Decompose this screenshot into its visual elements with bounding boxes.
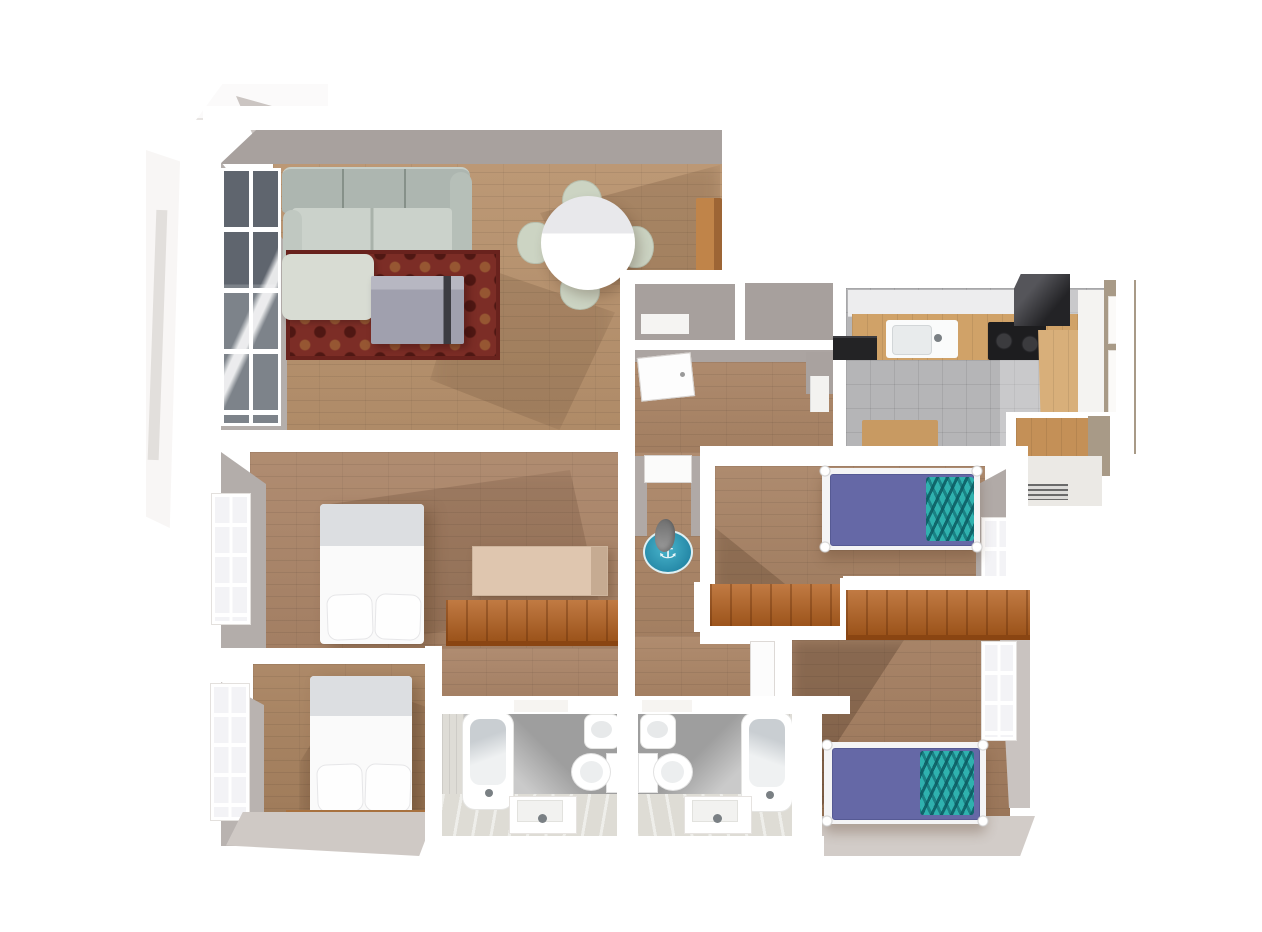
master-pillow-right [374,593,422,641]
bathroom1-door-threshold [514,700,568,712]
living-room-bottom-wall [203,430,632,450]
closet-right-interior [745,283,834,341]
bathroom2-bidet-bowl [647,721,668,738]
closet-shelf [641,314,689,334]
bathroom2-bathtub-basin [749,719,785,787]
bedroom2-wardrobe [710,584,844,632]
bathroom1-tub-faucet [485,789,493,797]
bedroom3-bed-posts [820,738,990,828]
living-room-picture-window [221,168,281,426]
kitchen-range-hood [1014,274,1070,326]
kitchen-nook-vent [1026,484,1068,500]
living-room-top-wall [203,106,740,130]
hallway-right-wall [700,464,715,592]
master-bed-sheet [320,504,424,546]
bathroom2-door-threshold [642,700,692,712]
kitchen-sink-basin [892,325,932,355]
bathroom1-bathtub-basin [470,719,506,785]
bathrooms-bottom-wall [425,836,824,856]
front-door [637,352,695,401]
master-pillow-left [326,593,374,641]
kitchen-faucet [934,334,942,342]
living-room-top-wall-face [220,130,736,164]
kitchen-cooktop [988,322,1046,360]
bedroom4-right-wall [425,646,442,858]
living-room-right-wall [722,106,740,276]
entry-side-door [810,376,829,412]
bathroom2-toilet-seat [661,761,684,783]
master-window [212,494,250,624]
bedroom3-wardrobe [846,590,1030,640]
bathroom1-bidet-bowl [591,721,612,738]
kitchen-outer-right-wall [1116,278,1134,456]
hallway-door [644,455,692,483]
bathroom2-vanity-faucet [713,814,722,823]
sofa-back [282,167,470,213]
kitchen-left-wall [833,270,846,462]
front-door-handle [680,372,685,377]
kitchen-top-wall [833,270,1133,288]
bathroom2-right-wall [792,696,822,856]
bedroom4-pillow-left [316,763,364,813]
bathroom1-vanity-faucet [538,814,547,823]
kitchen-oven [833,336,877,360]
sideboard [696,198,722,272]
hallway-right-wall-lower [694,582,711,632]
master-wardrobe [446,600,628,646]
master-dresser [472,546,608,596]
coffee-table [371,276,464,344]
living-room-left-wall [203,106,222,456]
entry-left-wall [620,270,635,462]
hallway-left-wall [618,448,635,712]
bathroom2-tub-faucet [766,791,774,799]
bedroom3-window [982,642,1016,740]
bedroom2-bed-posts [818,464,984,554]
bedroom4-bottom-wall-face [226,812,436,856]
bedroom4-window [211,684,249,820]
bedroom3-door [750,641,775,700]
bedroom4-bed-sheet [310,676,412,716]
bedroom4-pillow-right [364,763,412,813]
closet-top-wall [620,270,840,284]
bathroom1-toilet-seat [580,761,603,783]
floor-plan-render: ⚓ [0,0,1262,932]
master-bedroom-floor-extension [440,648,620,700]
kitchen-upper-cabinets [848,290,1018,317]
sofa-chaise [282,254,374,320]
bathrooms-divider-wall [617,696,638,856]
bedroom2-top-wall [700,446,1006,466]
